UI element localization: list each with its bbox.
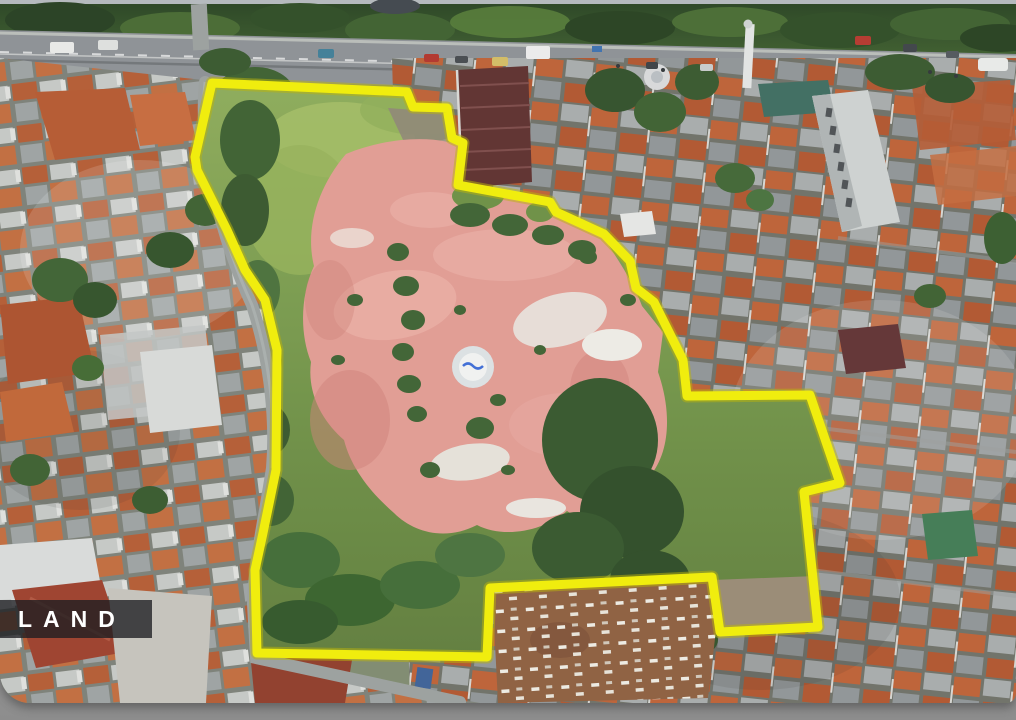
aerial-photo bbox=[0, 0, 1016, 703]
aerial-scene bbox=[0, 0, 1016, 703]
haze-overlay bbox=[0, 0, 1016, 703]
land-label: LAND bbox=[0, 600, 152, 638]
land-label-text: LAND bbox=[18, 606, 126, 633]
